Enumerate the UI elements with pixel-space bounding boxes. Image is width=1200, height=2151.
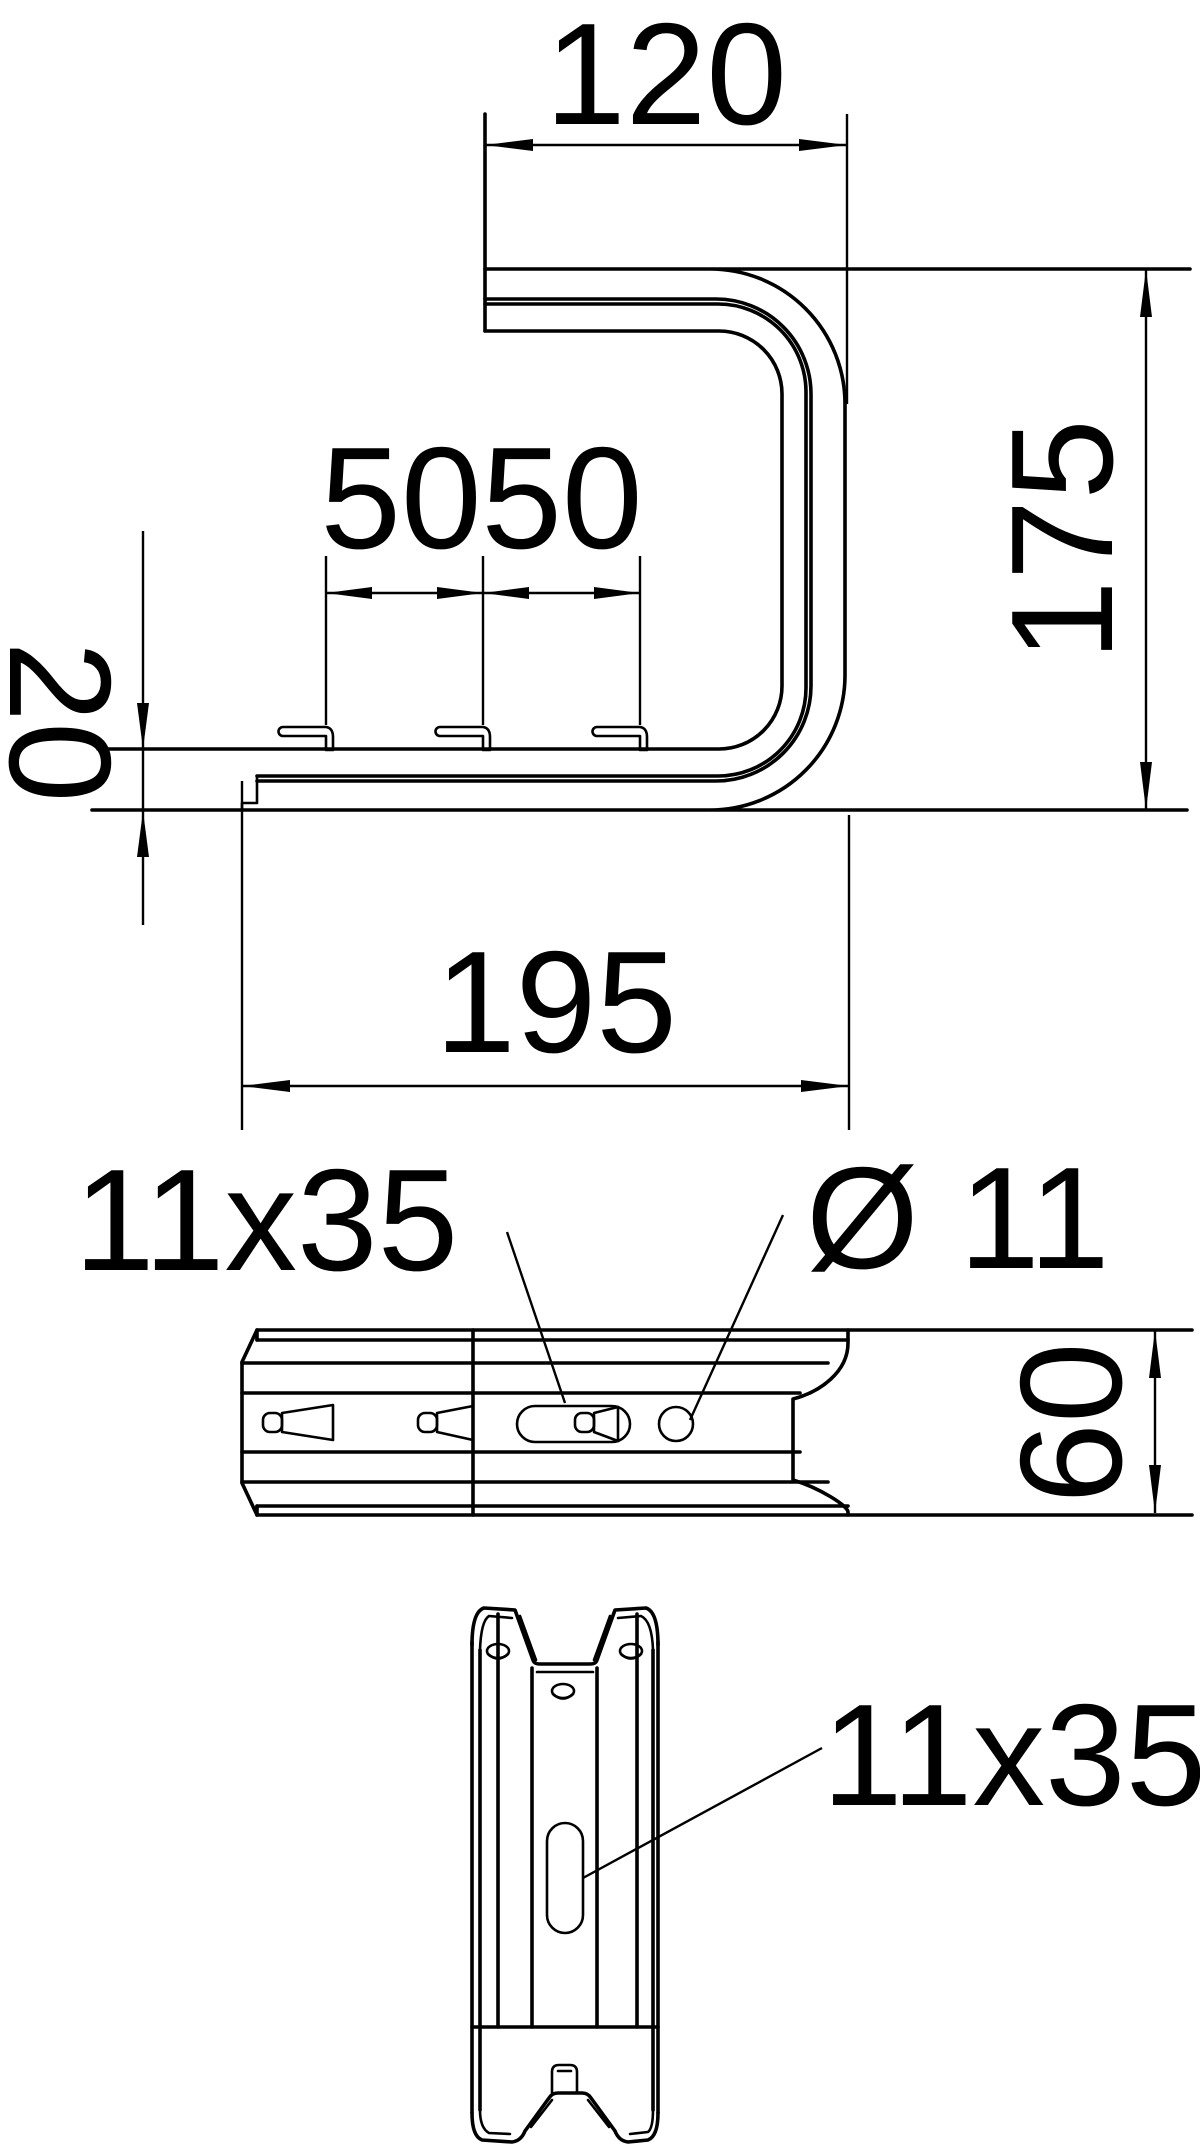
dim-175-label: 175 bbox=[981, 419, 1143, 661]
dim-50a-arrow-right bbox=[437, 587, 483, 599]
front-tab-2-nub bbox=[418, 1413, 437, 1432]
dim-20-arrow-bottom bbox=[137, 811, 149, 857]
front-slot-label: 11x35 bbox=[74, 1139, 458, 1301]
dim-60: 60 bbox=[990, 1330, 1161, 1513]
front-view: 11x35 Ø 11 60 bbox=[74, 1137, 1192, 1515]
front-round-hole bbox=[659, 1407, 693, 1441]
dim-120-arrow-right bbox=[799, 139, 847, 151]
dim-120-arrow-left bbox=[485, 139, 533, 151]
bracket-technical-drawing: 120 175 20 50 50 bbox=[0, 0, 1200, 2151]
front-tab-2 bbox=[437, 1406, 473, 1440]
technical-drawing-page: 120 175 20 50 50 bbox=[0, 0, 1200, 2151]
plan-view: 11x35 bbox=[472, 1608, 1200, 2142]
plan-bottom-tab bbox=[552, 2065, 577, 2093]
side-hooks bbox=[279, 727, 648, 750]
dim-50b-arrow-left bbox=[483, 587, 529, 599]
dim-175-arrow-top bbox=[1140, 269, 1152, 317]
plan-slot-outline bbox=[547, 1823, 583, 1933]
dim-50b-label: 50 bbox=[481, 417, 642, 579]
dim-50b-arrow-right bbox=[594, 587, 640, 599]
front-tab-1-nub bbox=[263, 1413, 282, 1432]
dim-195-arrow-left bbox=[242, 1080, 290, 1092]
front-tab-1 bbox=[282, 1405, 333, 1440]
front-slot-outline bbox=[517, 1406, 630, 1442]
front-slot-tab-nub bbox=[575, 1413, 594, 1432]
front-slot-group bbox=[517, 1406, 630, 1442]
front-right-end bbox=[793, 1330, 848, 1515]
front-hole-leader bbox=[690, 1215, 783, 1420]
side-view: 120 175 20 50 50 bbox=[0, 0, 1190, 1130]
dim-195-arrow-right bbox=[801, 1080, 849, 1092]
front-punched-tabs bbox=[263, 1405, 473, 1440]
front-left-end bbox=[242, 1330, 257, 1515]
dim-50a-label: 50 bbox=[320, 417, 481, 579]
plan-bottom-inner-lines bbox=[480, 2100, 653, 2134]
dim-20: 20 bbox=[0, 531, 149, 925]
plan-rivet-center-base bbox=[553, 1694, 573, 1699]
plan-slot-label: 11x35 bbox=[822, 1674, 1200, 1836]
plan-vertical-edges bbox=[472, 1614, 658, 2113]
front-slot-leader bbox=[507, 1232, 565, 1403]
dim-120-label: 120 bbox=[545, 0, 787, 155]
dim-60-label: 60 bbox=[990, 1342, 1152, 1503]
front-slot-tab bbox=[594, 1407, 618, 1441]
dim-175: 175 bbox=[981, 269, 1152, 810]
dim-50a-arrow-left bbox=[326, 587, 372, 599]
dim-195: 195 bbox=[242, 921, 849, 1092]
dim-195-label: 195 bbox=[435, 921, 677, 1083]
plan-labels: 11x35 bbox=[583, 1674, 1200, 1878]
dim-20-label: 20 bbox=[0, 641, 141, 802]
plan-slot-leader bbox=[583, 1748, 822, 1878]
dim-175-arrow-bottom bbox=[1140, 762, 1152, 810]
side-base-step bbox=[242, 776, 257, 810]
dim-120: 120 bbox=[485, 0, 847, 155]
front-hole-label: Ø 11 bbox=[806, 1137, 1110, 1299]
dim-50-50: 50 50 bbox=[320, 417, 642, 599]
front-labels: 11x35 Ø 11 bbox=[74, 1137, 1110, 1420]
